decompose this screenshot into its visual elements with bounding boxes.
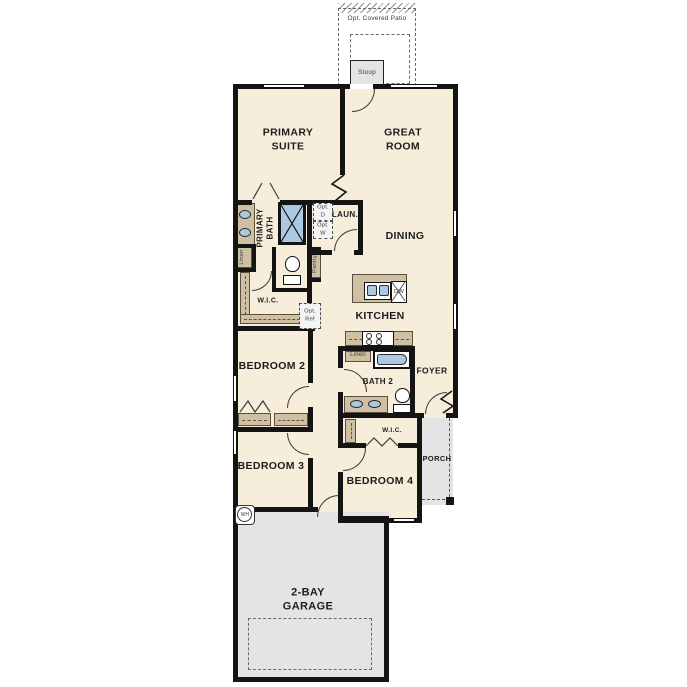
pantry-label: Pantry — [312, 255, 320, 273]
foyer-label: FOYER — [416, 365, 447, 376]
wall — [233, 512, 238, 682]
wall — [358, 200, 363, 255]
wic-bedroom4-shelf — [345, 419, 356, 443]
sink — [239, 228, 251, 237]
toilet — [283, 256, 301, 285]
garage-label: 2-BAY GARAGE — [283, 586, 333, 615]
wic-bedroom4-label: W.I.C. — [382, 427, 402, 435]
floor-plan: Opt. Covered Patio Stoop PRIMARY SUITE G… — [0, 0, 687, 687]
wall — [307, 247, 321, 251]
opt-dryer-label: Opt. D — [317, 204, 329, 219]
burner — [376, 339, 382, 345]
bedroom3-label: BEDROOM 3 — [238, 460, 305, 474]
sink — [350, 400, 363, 408]
window — [233, 375, 238, 402]
wall — [340, 516, 389, 521]
wall — [308, 458, 313, 507]
wall — [307, 278, 321, 282]
wall — [338, 351, 343, 368]
opt-washer-label: Opt. W — [317, 222, 329, 237]
bifold-door-mark — [366, 437, 398, 447]
burner — [366, 339, 372, 345]
window — [233, 430, 238, 455]
window — [453, 210, 458, 237]
primary-bath-label: PRIMARY BATH — [256, 208, 277, 247]
great-room-label: GREAT ROOM — [384, 126, 422, 153]
wall — [340, 89, 345, 175]
garage-door-outline — [248, 618, 372, 670]
wall — [453, 84, 458, 418]
opening-mark — [439, 390, 454, 414]
shower — [278, 202, 306, 245]
toilet — [393, 388, 411, 413]
stoop-label: Stoop — [358, 69, 376, 77]
wic-primary-shelf-bottom — [240, 314, 304, 324]
opening-mark — [330, 173, 352, 202]
wall — [308, 331, 313, 383]
wall — [233, 427, 313, 432]
bedroom2-label: BEDROOM 2 — [239, 360, 306, 374]
laundry-label: LAUN. — [332, 210, 358, 220]
wall — [272, 288, 311, 292]
window — [453, 303, 458, 330]
bifold-door-mark — [240, 399, 271, 413]
patio-label: Opt. Covered Patio — [348, 15, 407, 23]
linen-primary-label: Linen — [239, 249, 247, 264]
window — [393, 518, 415, 523]
window — [263, 84, 305, 89]
dishwasher-label: DW — [394, 289, 404, 297]
primary-suite-label: PRIMARY SUITE — [263, 126, 313, 153]
window — [390, 84, 438, 89]
wall — [398, 443, 422, 448]
water-heater-label: WH — [241, 512, 250, 519]
bath2-label: BATH 2 — [363, 377, 393, 387]
sink — [368, 400, 381, 408]
sink — [239, 210, 251, 219]
sink-basin — [379, 285, 389, 296]
bedroom2-closet-right — [274, 413, 308, 426]
porch-label: PORCH — [423, 454, 452, 464]
wall — [233, 200, 252, 205]
wall — [233, 677, 389, 682]
kitchen-label: KITCHEN — [355, 310, 404, 324]
dining-label: DINING — [386, 230, 425, 244]
wall — [417, 413, 422, 523]
wic-primary-label: W.I.C. — [257, 296, 278, 305]
double-door-mark — [252, 182, 280, 200]
wall — [338, 392, 343, 413]
wall — [384, 521, 389, 682]
sink-basin — [367, 285, 377, 296]
opt-ref-label: Opt. Ref — [304, 308, 316, 323]
wall — [338, 413, 424, 418]
bedroom4-label: BEDROOM 4 — [347, 475, 414, 489]
wall — [272, 247, 276, 292]
porch-column — [446, 497, 454, 505]
bedroom2-closet-left — [238, 413, 271, 426]
bathtub-surround — [373, 350, 411, 369]
linen-bath2-label: Linen — [350, 352, 366, 360]
